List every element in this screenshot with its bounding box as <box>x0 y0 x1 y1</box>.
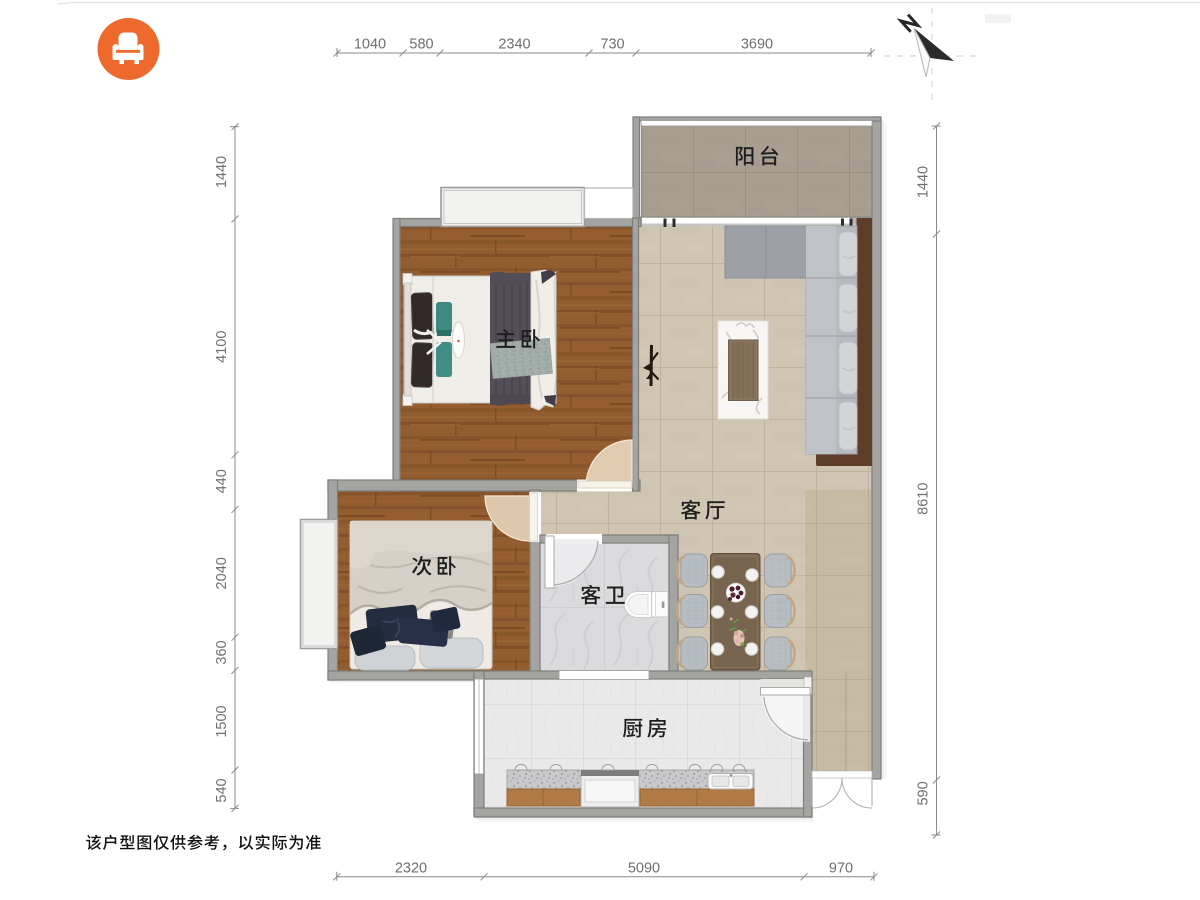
svg-text:730: 730 <box>600 37 624 53</box>
svg-text:440: 440 <box>214 469 230 493</box>
svg-text:540: 540 <box>214 778 230 802</box>
svg-text:1500: 1500 <box>214 705 230 737</box>
svg-text:1040: 1040 <box>354 37 386 53</box>
svg-text:580: 580 <box>409 37 433 53</box>
svg-text:2320: 2320 <box>395 860 427 876</box>
svg-text:3690: 3690 <box>741 37 773 53</box>
svg-text:970: 970 <box>829 860 853 876</box>
svg-text:2340: 2340 <box>498 37 530 53</box>
svg-text:5090: 5090 <box>628 860 660 876</box>
svg-text:1440: 1440 <box>916 166 932 198</box>
svg-text:4100: 4100 <box>214 331 230 363</box>
svg-text:360: 360 <box>214 640 230 664</box>
svg-text:1440: 1440 <box>214 156 230 188</box>
svg-text:590: 590 <box>916 781 932 805</box>
svg-text:2040: 2040 <box>214 557 230 589</box>
svg-text:8610: 8610 <box>916 483 932 515</box>
